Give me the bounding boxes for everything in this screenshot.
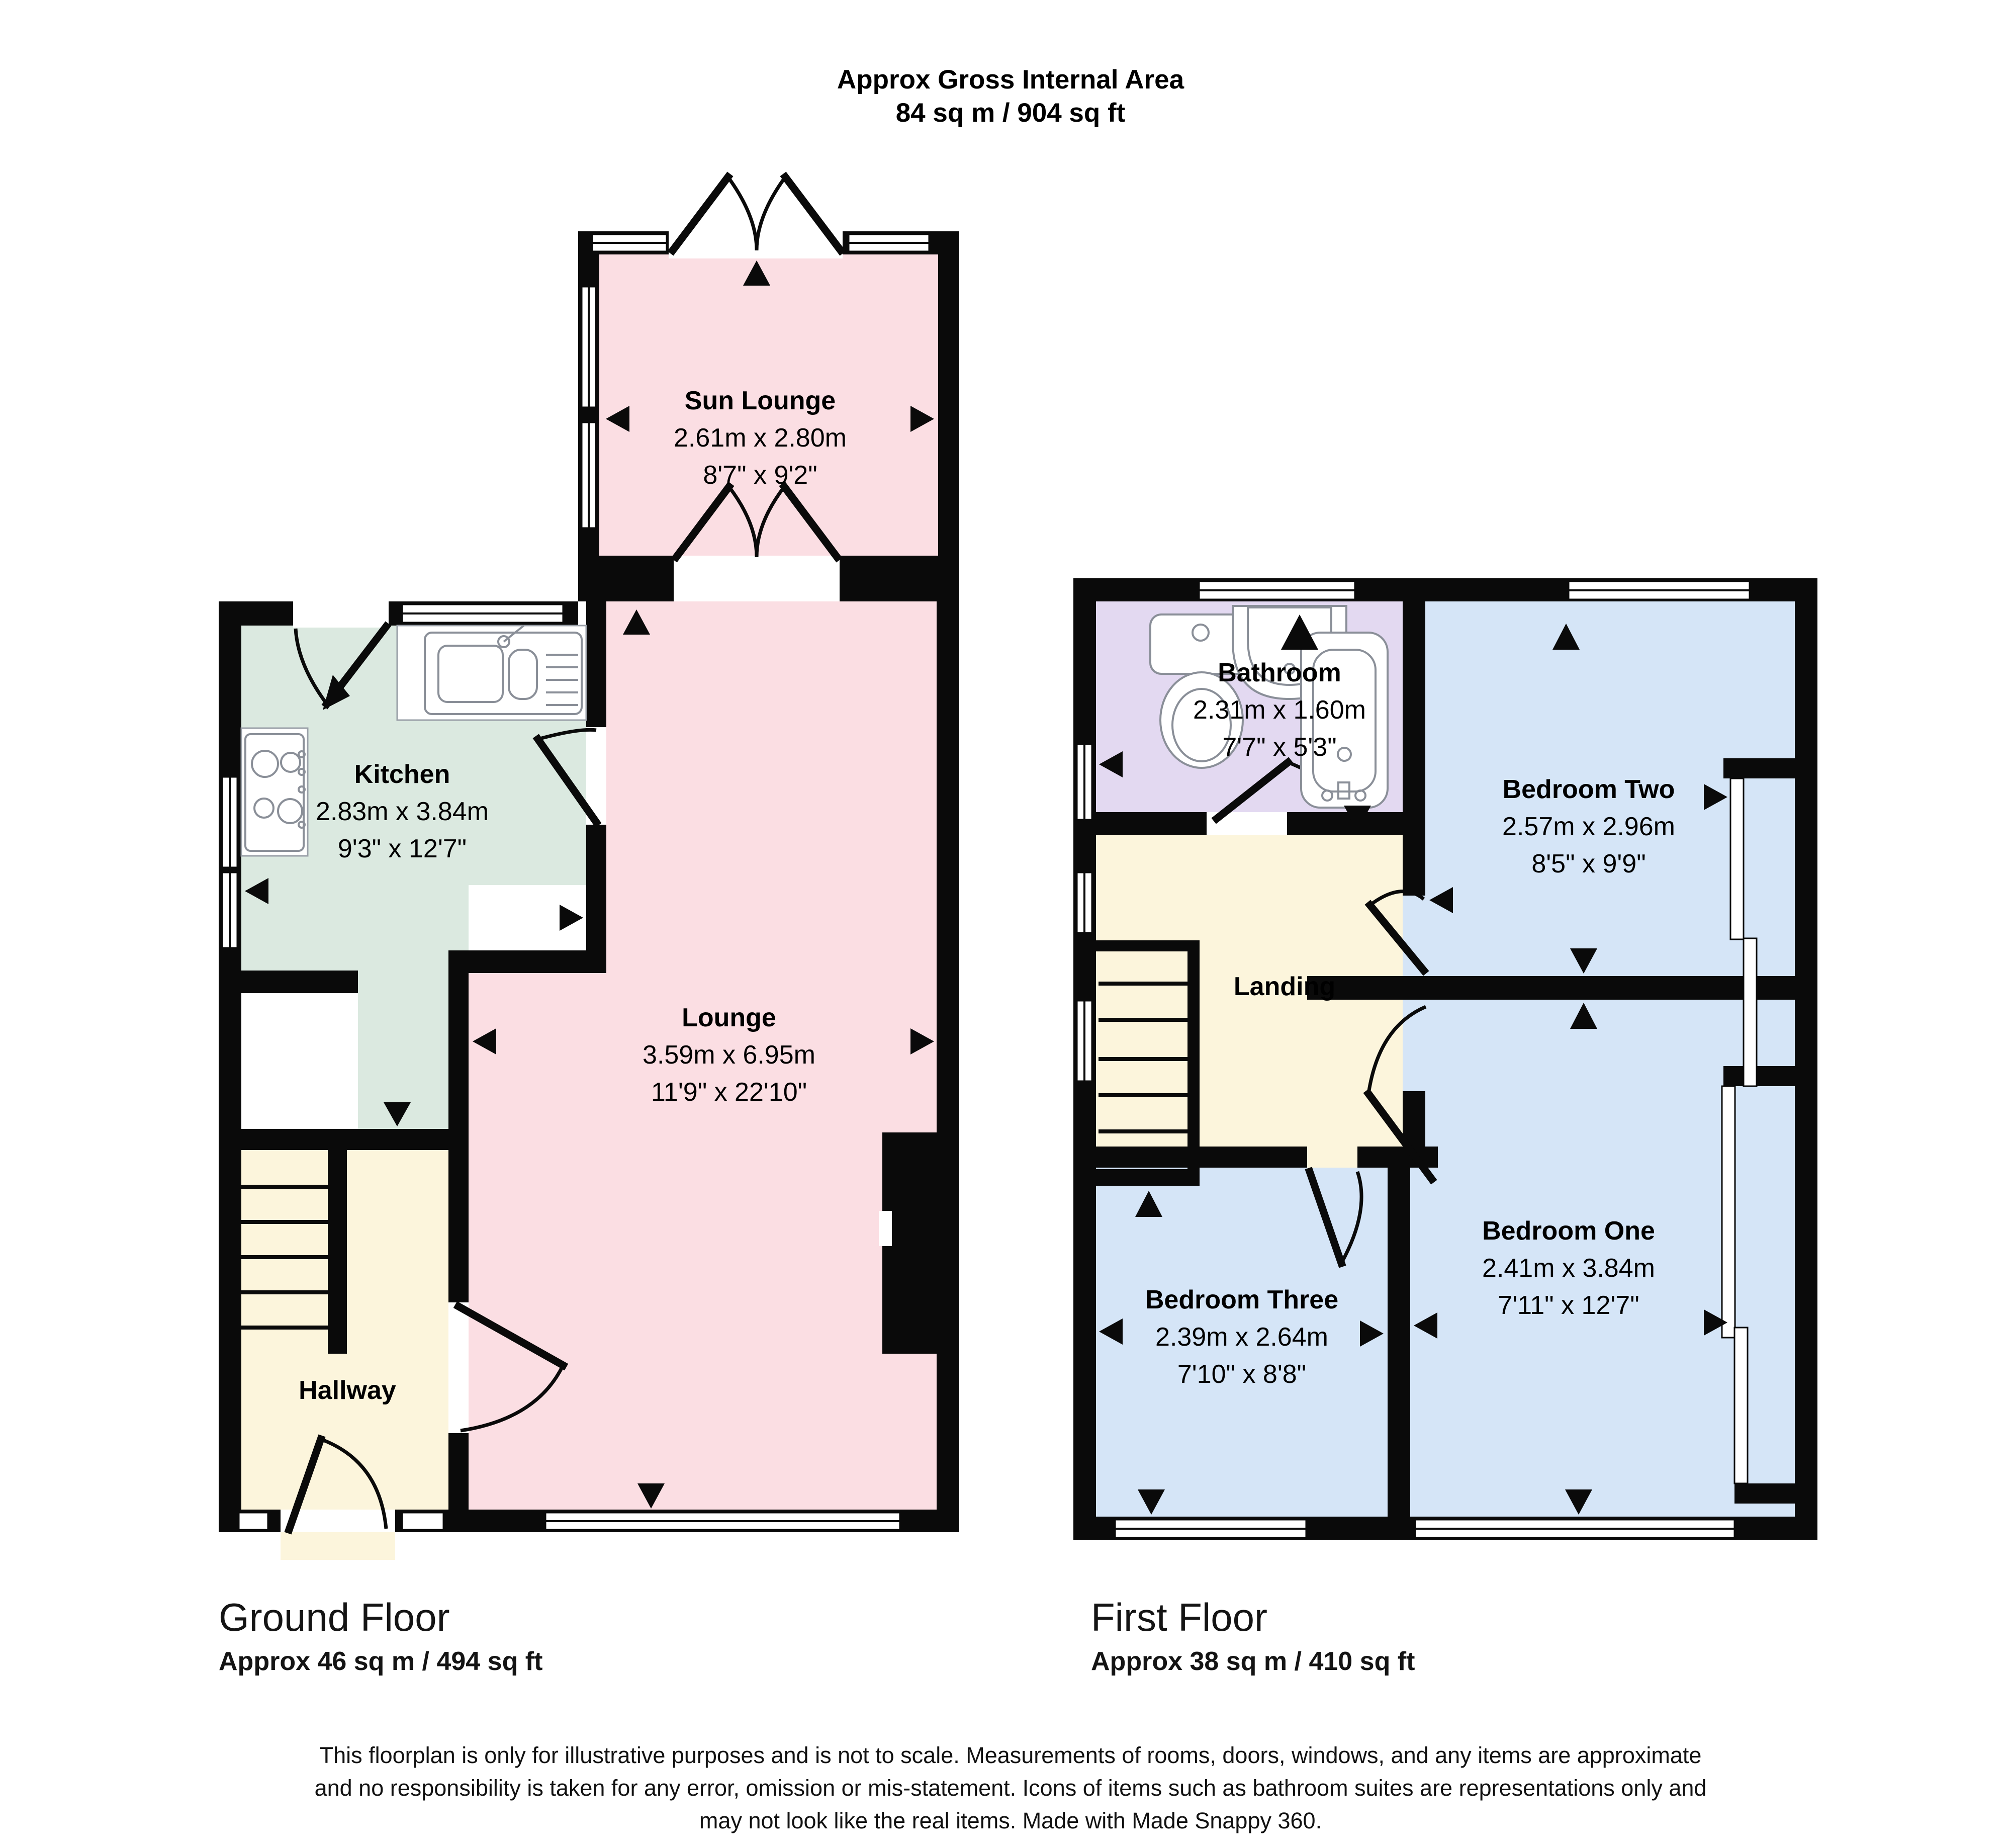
floorplan-canvas: Approx Gross Internal Area 84 sq m / 904… (0, 0, 2011, 1848)
disclaimer-line-2: and no responsibility is taken for any e… (315, 1772, 1707, 1804)
kitchen-lounge-step-wall (448, 950, 606, 973)
ground-left-wall (219, 601, 241, 1532)
hallway-window-right (402, 1513, 443, 1530)
stair-stringer (1187, 940, 1200, 1186)
kitchen-lobby-wall (219, 971, 358, 993)
room-name: Lounge (643, 999, 815, 1036)
ground-right-wall (937, 601, 959, 1532)
ground-floor-caption: Ground Floor Approx 46 sq m / 494 sq ft (219, 1593, 542, 1682)
bedroom-one-bay-window-upper (1722, 1086, 1735, 1338)
hallway-window-left (239, 1513, 268, 1530)
ground-floor-plan (219, 177, 959, 1560)
room-imperial: 8'7" x 9'2" (674, 457, 847, 494)
hallway-lounge-wall-upper (448, 973, 469, 1302)
sun-lounge-label: Sun Lounge 2.61m x 2.80m 8'7" x 9'2" (674, 382, 847, 494)
room-metric: 2.39m x 2.64m (1145, 1318, 1338, 1356)
room-metric: 2.57m x 2.96m (1502, 808, 1675, 845)
landing-bottom-wall-stub (1357, 1147, 1438, 1168)
lounge-label: Lounge 3.59m x 6.95m 11'9" x 22'10" (643, 999, 815, 1111)
title-line-2: 84 sq m / 904 sq ft (837, 97, 1184, 130)
room-name: Hallway (299, 1372, 396, 1409)
stair-stringer (328, 1150, 347, 1354)
room-name: Bedroom Two (1502, 771, 1675, 808)
bedroom-two-label: Bedroom Two 2.57m x 2.96m 8'5" x 9'9" (1502, 771, 1675, 883)
kitchen-counter-hob (241, 728, 308, 856)
hallway-top-wall (219, 1129, 448, 1150)
room-metric: 3.59m x 6.95m (643, 1036, 815, 1074)
room-imperial: 9'3" x 12'7" (316, 830, 489, 867)
first-floor-plan (1073, 578, 1817, 1540)
room-imperial: 7'11" x 12'7" (1482, 1287, 1655, 1324)
kitchen-lounge-wall-upper (586, 601, 606, 727)
floor-area: Approx 38 sq m / 410 sq ft (1091, 1641, 1415, 1682)
disclaimer-line-3: may not look like the real items. Made w… (315, 1804, 1707, 1837)
room-metric: 2.61m x 2.80m (674, 419, 847, 457)
rear-lobby-floor (241, 993, 358, 1149)
kitchen-back-door-opening (293, 599, 389, 628)
window-bay-stub (1723, 758, 1795, 778)
hallway-lounge-wall-lower (448, 1433, 469, 1510)
room-name: Bathroom (1193, 654, 1366, 691)
room-imperial: 8'5" x 9'9" (1502, 845, 1675, 883)
bedroom-two-bay-window-lower (1744, 938, 1757, 1086)
window-bay-stub (1723, 1066, 1795, 1086)
room-imperial: 7'7" x 5'3" (1193, 729, 1366, 766)
window-bay-stub (1734, 1483, 1795, 1504)
room-metric: 2.83m x 3.84m (316, 793, 489, 830)
chimney-flue-notch (879, 1211, 892, 1246)
floor-area: Approx 46 sq m / 494 sq ft (219, 1641, 542, 1682)
kitchen-floor-mid (241, 885, 469, 971)
room-name: Landing (1234, 968, 1335, 1005)
title-line-1: Approx Gross Internal Area (837, 63, 1184, 97)
room-name: Kitchen (316, 756, 489, 793)
kitchen-label: Kitchen 2.83m x 3.84m 9'3" x 12'7" (316, 756, 489, 867)
sun-lounge-right-wall (938, 231, 959, 601)
room-metric: 2.41m x 3.84m (1482, 1250, 1655, 1287)
room-metric: 2.31m x 1.60m (1193, 691, 1366, 729)
floor-name: First Floor (1091, 1593, 1415, 1641)
bathroom-bedroom-two-wall (1403, 601, 1425, 835)
bedroom-two-bay-window-upper (1730, 778, 1744, 939)
bathroom-label: Bathroom 2.31m x 1.60m 7'7" x 5'3" (1193, 654, 1366, 766)
floor-name: Ground Floor (219, 1593, 542, 1641)
hallway-label: Hallway (299, 1372, 396, 1409)
page-title: Approx Gross Internal Area 84 sq m / 904… (837, 63, 1184, 130)
room-imperial: 7'10" x 8'8" (1145, 1356, 1338, 1393)
bedroom-one-bay-window-lower (1734, 1328, 1748, 1483)
bedroom-three-bedroom-one-wall (1388, 1168, 1410, 1517)
floorplan-drawing (0, 0, 2011, 1848)
room-name: Bedroom Three (1145, 1281, 1338, 1318)
first-right-wall (1795, 578, 1817, 1540)
room-imperial: 11'9" x 22'10" (643, 1074, 815, 1111)
lounge-floor-lower (469, 973, 606, 1510)
disclaimer-line-1: This floorplan is only for illustrative … (315, 1739, 1707, 1772)
bedroom-three-label: Bedroom Three 2.39m x 2.64m 7'10" x 8'8" (1145, 1281, 1338, 1393)
landing-label: Landing (1234, 968, 1335, 1005)
room-name: Sun Lounge (674, 382, 847, 419)
lounge-sun-lounge-door-opening (674, 556, 840, 601)
room-name: Bedroom One (1482, 1212, 1655, 1250)
first-floor-caption: First Floor Approx 38 sq m / 410 sq ft (1091, 1593, 1415, 1682)
right-arrow (560, 905, 583, 931)
stair-rail-top (1096, 940, 1200, 951)
bedroom-two-bedroom-one-wall (1307, 976, 1817, 1000)
landing-bottom-wall (1096, 1147, 1307, 1168)
bedroom-one-label: Bedroom One 2.41m x 3.84m 7'11" x 12'7" (1482, 1212, 1655, 1324)
kitchen-lounge-wall-lower (586, 825, 606, 950)
disclaimer-text: This floorplan is only for illustrative … (315, 1739, 1707, 1837)
landing-bedroom-two-wall (1403, 835, 1425, 896)
stair-rail-bottom (1096, 1169, 1200, 1186)
